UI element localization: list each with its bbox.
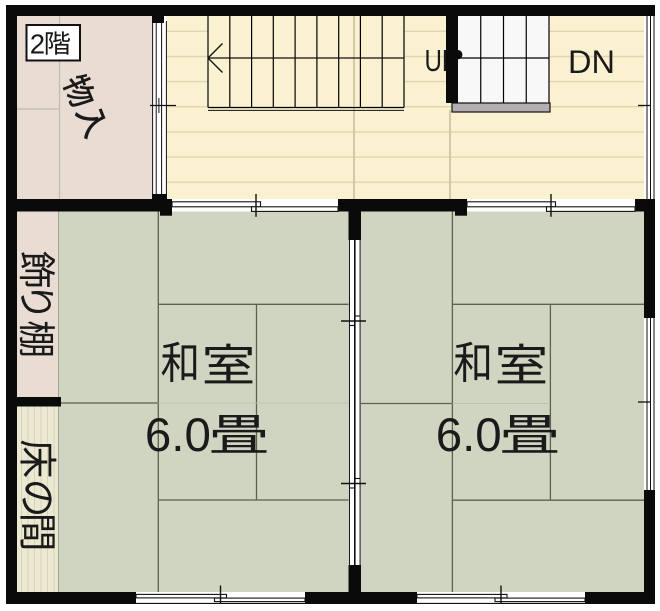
svg-text:6.0: 6.0 xyxy=(145,409,211,462)
svg-text:DN: DN xyxy=(568,44,615,80)
svg-text:6.0: 6.0 xyxy=(436,409,502,462)
svg-text:2: 2 xyxy=(30,28,45,59)
